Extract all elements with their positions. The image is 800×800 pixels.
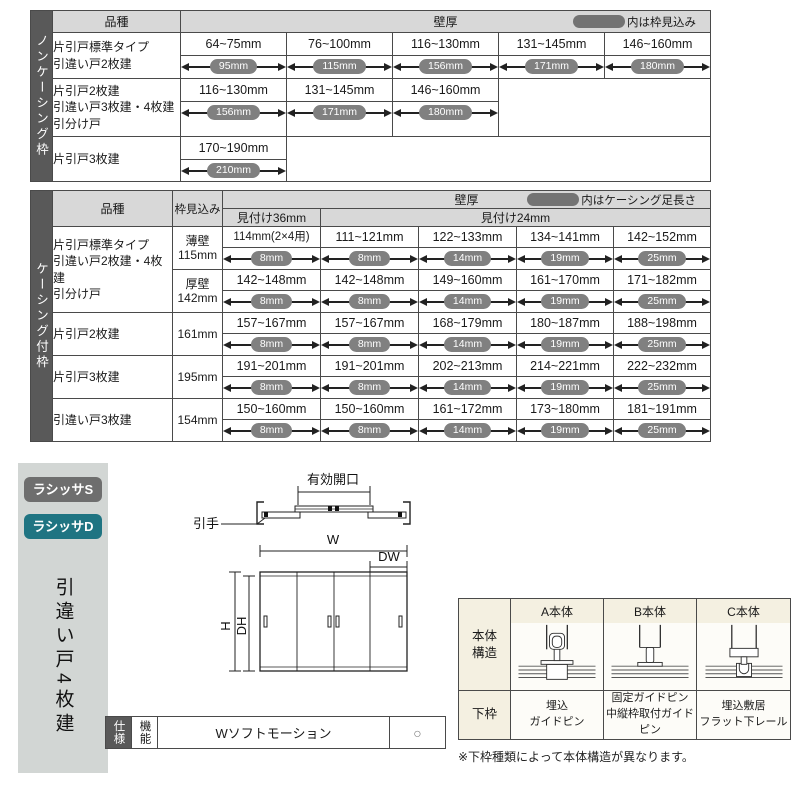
legend-text: 内は枠見込み	[627, 14, 696, 30]
function-name: Wソフトモーション	[158, 717, 390, 749]
dim-cell: 180~187mm19mm	[517, 313, 614, 356]
w-dim-label: W	[327, 532, 340, 547]
dimension-arrow: 19mm	[517, 248, 613, 269]
frame-depth-value: 195mm	[173, 356, 223, 399]
wall-range: 131~145mm	[287, 79, 392, 102]
dim-cell: 170~190mm210mm	[181, 137, 287, 182]
dimension-pill: 25mm	[638, 337, 685, 352]
dh-dim-label: DH	[234, 617, 249, 636]
dimension-arrow: 8mm	[321, 291, 418, 312]
dimension-pill: 19mm	[541, 380, 588, 395]
dimension-arrow: 8mm	[321, 377, 418, 398]
dimension-pill: 8mm	[349, 337, 390, 352]
empty-cell	[499, 79, 711, 137]
dim-cell: 131~145mm171mm	[499, 33, 605, 79]
dim-cell: 122~133mm14mm	[419, 227, 517, 270]
dim-cell: 142~148mm8mm	[223, 270, 321, 313]
door-handle	[399, 616, 402, 627]
dim-cell: 202~213mm14mm	[419, 356, 517, 399]
dimension-arrow: 8mm	[321, 248, 418, 269]
door-handle	[336, 616, 339, 627]
dim-cell: 191~201mm8mm	[321, 356, 419, 399]
legend-pill-shape	[573, 15, 625, 28]
dimension-pill: 8mm	[251, 337, 292, 352]
dimension-arrow: 171mm	[287, 102, 392, 123]
spec-header-cell: 仕様	[106, 717, 132, 749]
wall-range: 146~160mm	[393, 79, 498, 102]
dimension-arrow: 14mm	[419, 377, 516, 398]
dimension-arrow: 25mm	[614, 291, 710, 312]
dimension-arrow: 14mm	[419, 420, 516, 441]
body-c-header: C本体	[697, 599, 791, 624]
dimension-arrow: 8mm	[223, 420, 320, 441]
dim-cell: 76~100mm115mm	[287, 33, 393, 79]
dimension-arrow: 25mm	[614, 334, 710, 355]
spec-label: 仕様	[111, 720, 127, 745]
wall-range: 214~221mm	[517, 356, 613, 377]
dimension-pill: 210mm	[207, 163, 260, 178]
wall-range: 202~213mm	[419, 356, 516, 377]
legend-pill-shape	[527, 193, 579, 206]
wall-range: 222~232mm	[614, 356, 710, 377]
dimension-pill: 8mm	[251, 380, 292, 395]
dimension-arrow: 25mm	[614, 248, 710, 269]
body-a-header: A本体	[511, 599, 604, 624]
dimension-pill: 19mm	[541, 294, 588, 309]
dimension-arrow: 156mm	[181, 102, 286, 123]
facewidth-24-header: 見付け24mm	[321, 209, 711, 227]
product-label: 片引戸2枚建 引違い戸3枚建・4枚建 引分け戸	[53, 79, 181, 137]
dimension-arrow: 25mm	[614, 377, 710, 398]
frame-depth-value: 厚壁 142mm	[173, 270, 223, 313]
dim-cell: 222~232mm25mm	[614, 356, 711, 399]
frame-depth-legend: 内は枠見込み	[573, 14, 696, 30]
dim-cell: 146~160mm180mm	[605, 33, 711, 79]
wall-range: 111~121mm	[321, 227, 418, 248]
wall-range: 157~167mm	[321, 313, 418, 334]
body-c-cross-section	[701, 623, 787, 685]
dim-cell: 111~121mm8mm	[321, 227, 419, 270]
handle-mark	[328, 506, 332, 511]
wall-range: 161~170mm	[517, 270, 613, 291]
body-b-header: B本体	[604, 599, 697, 624]
body-b-cross-section	[607, 623, 693, 685]
dimension-arrow: 156mm	[393, 56, 498, 77]
dimension-pill: 19mm	[541, 423, 588, 438]
dim-cell: 161~170mm19mm	[517, 270, 614, 313]
body-structure-table: 本体 構造 A本体 B本体 C本体	[458, 598, 791, 740]
dimension-pill: 14mm	[444, 251, 491, 266]
dim-cell: 146~160mm180mm	[393, 79, 499, 137]
wall-range: 142~148mm	[223, 270, 320, 291]
dim-cell: 161~172mm14mm	[419, 399, 517, 442]
dim-cell: 149~160mm14mm	[419, 270, 517, 313]
empty-cell	[287, 137, 711, 182]
badge-lasissa-d: ラシッサD	[24, 514, 102, 539]
dimension-pill: 19mm	[541, 337, 588, 352]
wall-range: 150~160mm	[223, 399, 320, 420]
dimension-arrow: 14mm	[419, 291, 516, 312]
dimension-pill: 25mm	[638, 380, 685, 395]
dimension-arrow: 19mm	[517, 334, 613, 355]
dim-cell: 181~191mm25mm	[614, 399, 711, 442]
dimension-arrow: 171mm	[499, 56, 604, 77]
wall-range: 134~141mm	[517, 227, 613, 248]
wall-range: 116~130mm	[181, 79, 286, 102]
wall-range: 180~187mm	[517, 313, 613, 334]
product-label: 片引戸2枚建	[53, 313, 173, 356]
dimension-arrow: 8mm	[223, 334, 320, 355]
casing-side-bar: ケーシング付枠	[31, 191, 53, 442]
dimension-pill: 180mm	[631, 59, 684, 74]
dimension-pill: 8mm	[251, 423, 292, 438]
dimension-arrow: 8mm	[223, 248, 320, 269]
dimension-arrow: 14mm	[419, 334, 516, 355]
body-c-diagram	[697, 623, 791, 691]
wall-range: 64~75mm	[181, 33, 286, 56]
dimension-pill: 8mm	[349, 380, 390, 395]
dimension-arrow: 8mm	[321, 420, 418, 441]
dimension-arrow: 8mm	[223, 377, 320, 398]
wall-range: 157~167mm	[223, 313, 320, 334]
dimension-arrow: 19mm	[517, 377, 613, 398]
body-b-diagram	[604, 623, 697, 691]
badge-lasissa-s: ラシッサS	[24, 477, 102, 502]
body-a-cross-section	[514, 623, 600, 685]
function-label: 機能	[137, 720, 153, 745]
dimension-pill: 156mm	[419, 59, 472, 74]
wall-range: 131~145mm	[499, 33, 604, 56]
dimension-pill: 8mm	[349, 251, 390, 266]
dimension-pill: 180mm	[419, 105, 472, 120]
dimension-pill: 25mm	[638, 294, 685, 309]
wall-thickness-header: 壁厚 内はケーシング足長さ	[223, 191, 711, 209]
body-structure-label: 本体 構造	[459, 599, 511, 691]
dimension-arrow: 8mm	[321, 334, 418, 355]
dimension-pill: 8mm	[251, 294, 292, 309]
dimension-pill: 25mm	[638, 251, 685, 266]
product-column-header: 品種	[53, 11, 181, 33]
product-label: 片引戸3枚建	[53, 137, 181, 182]
wall-range: 171~182mm	[614, 270, 710, 291]
dimension-pill: 95mm	[210, 59, 257, 74]
sill-type-c: 埋込敷居 フラット下レール	[697, 691, 791, 740]
sill-type-a: 埋込 ガイドピン	[511, 691, 604, 740]
dimension-arrow: 8mm	[223, 291, 320, 312]
frame-depth-value: 161mm	[173, 313, 223, 356]
wall-range: 173~180mm	[517, 399, 613, 420]
product-label: 片引戸標準タイプ 引違い戸2枚建	[53, 33, 181, 79]
frame-depth-value: 薄壁 115mm	[173, 227, 223, 270]
sill-label: 下枠	[459, 691, 511, 740]
dimension-pill: 14mm	[444, 380, 491, 395]
wall-range: 150~160mm	[321, 399, 418, 420]
dim-cell: 168~179mm14mm	[419, 313, 517, 356]
dimension-pill: 25mm	[638, 423, 685, 438]
dimension-pill: 19mm	[541, 251, 588, 266]
dim-cell: 214~221mm19mm	[517, 356, 614, 399]
dim-cell: 157~167mm8mm	[223, 313, 321, 356]
dim-cell: 116~130mm156mm	[393, 33, 499, 79]
wall-range: 149~160mm	[419, 270, 516, 291]
handle-mark	[398, 512, 402, 517]
dimension-pill: 171mm	[525, 59, 578, 74]
product-column-header: 品種	[53, 191, 173, 227]
dim-cell: 114mm(2×4用)8mm	[223, 227, 321, 270]
dimension-pill: 8mm	[349, 294, 390, 309]
wall-range: 191~201mm	[321, 356, 418, 377]
dim-cell: 191~201mm8mm	[223, 356, 321, 399]
dim-cell: 131~145mm171mm	[287, 79, 393, 137]
wall-range: 142~152mm	[614, 227, 710, 248]
dimension-arrow: 25mm	[614, 420, 710, 441]
structure-note: ※下枠種類によって本体構造が異なります。	[458, 748, 694, 765]
facewidth-36-header: 見付け36mm	[223, 209, 321, 227]
product-label: 片引戸3枚建	[53, 356, 173, 399]
dimension-arrow: 19mm	[517, 291, 613, 312]
product-label: 片引戸標準タイプ 引違い戸2枚建・4枚建 引分け戸	[53, 227, 173, 313]
wall-range: 76~100mm	[287, 33, 392, 56]
dim-cell: 134~141mm19mm	[517, 227, 614, 270]
wall-range: 146~160mm	[605, 33, 710, 56]
wall-range: 191~201mm	[223, 356, 320, 377]
dim-cell: 171~182mm25mm	[614, 270, 711, 313]
dim-cell: 188~198mm25mm	[614, 313, 711, 356]
body-a-diagram	[511, 623, 604, 691]
dimension-pill: 14mm	[444, 423, 491, 438]
wall-range: 116~130mm	[393, 33, 498, 56]
wall-range: 170~190mm	[181, 137, 286, 160]
dim-cell: 150~160mm8mm	[321, 399, 419, 442]
dimension-arrow: 19mm	[517, 420, 613, 441]
door-diagram: 有効開口 引手 W DW H DH	[185, 468, 425, 680]
dim-cell: 157~167mm8mm	[321, 313, 419, 356]
h-dim-label: H	[218, 621, 233, 630]
side-bar-label: ノンケーシング枠	[32, 34, 51, 158]
frame-depth-value: 154mm	[173, 399, 223, 442]
spec-function-table: 仕様 機能 Wソフトモーション ○	[105, 716, 446, 749]
wall-range: 181~191mm	[614, 399, 710, 420]
function-availability-mark: ○	[390, 717, 446, 749]
dimension-pill: 14mm	[444, 294, 491, 309]
dimension-pill: 8mm	[251, 251, 292, 266]
sill-type-b: 固定ガイドピン 中縦枠取付ガイドピン	[604, 691, 697, 740]
dimension-arrow: 210mm	[181, 160, 286, 181]
handle-label: 引手	[193, 516, 219, 531]
dimension-pill: 115mm	[313, 59, 365, 74]
dimension-pill: 8mm	[349, 423, 390, 438]
legend-text: 内はケーシング足長さ	[581, 192, 696, 208]
dimension-arrow: 180mm	[605, 56, 710, 77]
handle-mark	[335, 506, 339, 511]
door-handle	[328, 616, 331, 627]
product-title: 引違い戸4枚建	[50, 577, 77, 737]
dim-cell: 116~130mm156mm	[181, 79, 287, 137]
wall-range: 122~133mm	[419, 227, 516, 248]
effective-opening-label: 有効開口	[307, 472, 359, 487]
casing-table: ケーシング付枠 品種 枠見込み 壁厚 内はケーシング足長さ 見付け36mm 見付…	[30, 190, 711, 442]
dim-cell: 142~148mm8mm	[321, 270, 419, 313]
dim-cell: 64~75mm95mm	[181, 33, 287, 79]
non-casing-side-bar: ノンケーシング枠	[31, 11, 53, 182]
dimension-arrow: 115mm	[287, 56, 392, 77]
dim-cell: 150~160mm8mm	[223, 399, 321, 442]
dimension-pill: 14mm	[444, 337, 491, 352]
wall-range: 161~172mm	[419, 399, 516, 420]
non-casing-table: ノンケーシング枠 品種 壁厚 内は枠見込み 片引戸標準タイプ 引違い戸2枚建 6…	[30, 10, 711, 182]
door-handle	[264, 616, 267, 627]
frame-depth-column-header: 枠見込み	[173, 191, 223, 227]
product-side-panel: ラシッサS ラシッサD 引違い戸4枚建	[18, 463, 108, 773]
wall-range: 142~148mm	[321, 270, 418, 291]
product-label: 引違い戸3枚建	[53, 399, 173, 442]
dw-dim-label: DW	[378, 549, 400, 564]
dimension-pill: 156mm	[207, 105, 260, 120]
side-bar-label: ケーシング付枠	[32, 262, 51, 371]
handle-mark	[264, 512, 268, 517]
wall-thickness-header: 壁厚 内は枠見込み	[181, 11, 711, 33]
dimension-arrow: 180mm	[393, 102, 498, 123]
casing-leg-legend: 内はケーシング足長さ	[527, 192, 696, 208]
dimension-pill: 171mm	[313, 105, 366, 120]
dimension-arrow: 95mm	[181, 56, 286, 77]
function-header-cell: 機能	[132, 717, 158, 749]
wall-range: 168~179mm	[419, 313, 516, 334]
wall-range: 188~198mm	[614, 313, 710, 334]
dim-cell: 142~152mm25mm	[614, 227, 711, 270]
dim-cell: 173~180mm19mm	[517, 399, 614, 442]
dimension-arrow: 14mm	[419, 248, 516, 269]
wall-range: 114mm(2×4用)	[223, 227, 320, 248]
